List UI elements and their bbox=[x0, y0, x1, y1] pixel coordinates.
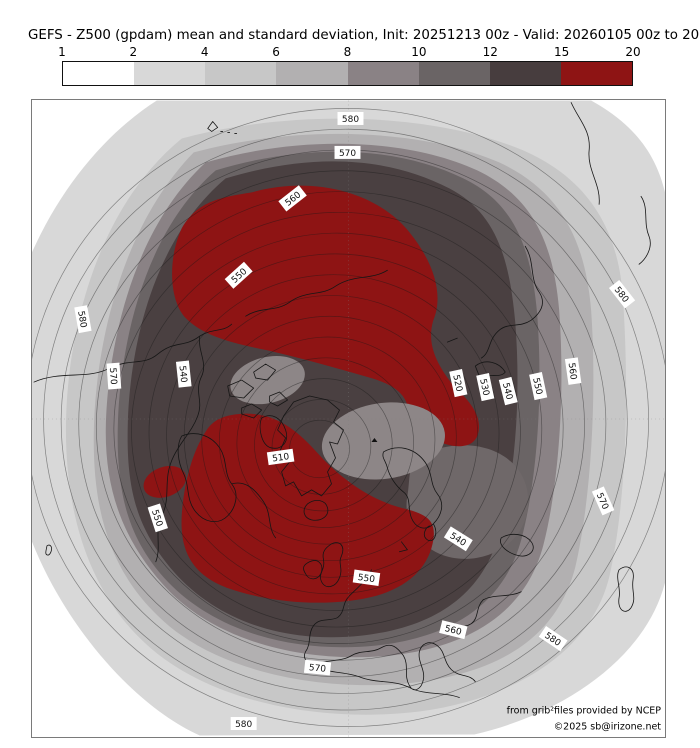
weather-map: 5805705605505805705405505105205305405505… bbox=[32, 100, 665, 737]
colorbar-segment-10-12 bbox=[419, 62, 490, 85]
contour-label-540: 540 bbox=[176, 360, 192, 387]
colorbar-tick: 15 bbox=[554, 45, 569, 59]
colorbar-segment-2-4 bbox=[134, 62, 205, 85]
contour-label-580: 580 bbox=[338, 112, 364, 125]
colorbar-segment-6-8 bbox=[276, 62, 347, 85]
attribution-source: from grib²files provided by NCEP bbox=[507, 706, 662, 717]
colorbar: 1246810121520 bbox=[62, 45, 633, 86]
colorbar-segment-15-20 bbox=[561, 62, 632, 85]
contour-label-570: 570 bbox=[335, 146, 361, 159]
attribution-copyright: ©2025 sb@irizone.net bbox=[554, 722, 662, 733]
colorbar-tick-row: 1246810121520 bbox=[62, 45, 633, 61]
colorbar-tick: 6 bbox=[272, 45, 280, 59]
svg-text:540: 540 bbox=[177, 365, 189, 383]
colorbar-segment-8-10 bbox=[348, 62, 419, 85]
colorbar-tick: 10 bbox=[411, 45, 426, 59]
colorbar-tick: 8 bbox=[344, 45, 352, 59]
colorbar-segment-1-2 bbox=[63, 62, 134, 85]
svg-text:570: 570 bbox=[107, 367, 118, 385]
contour-label-580: 580 bbox=[231, 717, 257, 730]
colorbar-tick: 20 bbox=[625, 45, 640, 59]
contour-label-570: 570 bbox=[304, 660, 331, 676]
svg-text:580: 580 bbox=[235, 720, 252, 730]
colorbar-segments bbox=[62, 61, 633, 86]
colorbar-segment-12-15 bbox=[490, 62, 561, 85]
chart-title: GEFS - Z500 (gpdam) mean and standard de… bbox=[28, 28, 700, 43]
svg-text:580: 580 bbox=[342, 115, 359, 125]
map-frame: 5805705605505805705405505105205305405505… bbox=[31, 99, 666, 738]
svg-text:570: 570 bbox=[308, 663, 326, 675]
colorbar-segment-4-6 bbox=[205, 62, 276, 85]
colorbar-tick: 4 bbox=[201, 45, 209, 59]
colorbar-tick: 2 bbox=[130, 45, 138, 59]
colorbar-tick: 12 bbox=[483, 45, 498, 59]
svg-text:570: 570 bbox=[339, 149, 356, 159]
contour-label-570: 570 bbox=[106, 363, 121, 390]
colorbar-tick: 1 bbox=[58, 45, 66, 59]
